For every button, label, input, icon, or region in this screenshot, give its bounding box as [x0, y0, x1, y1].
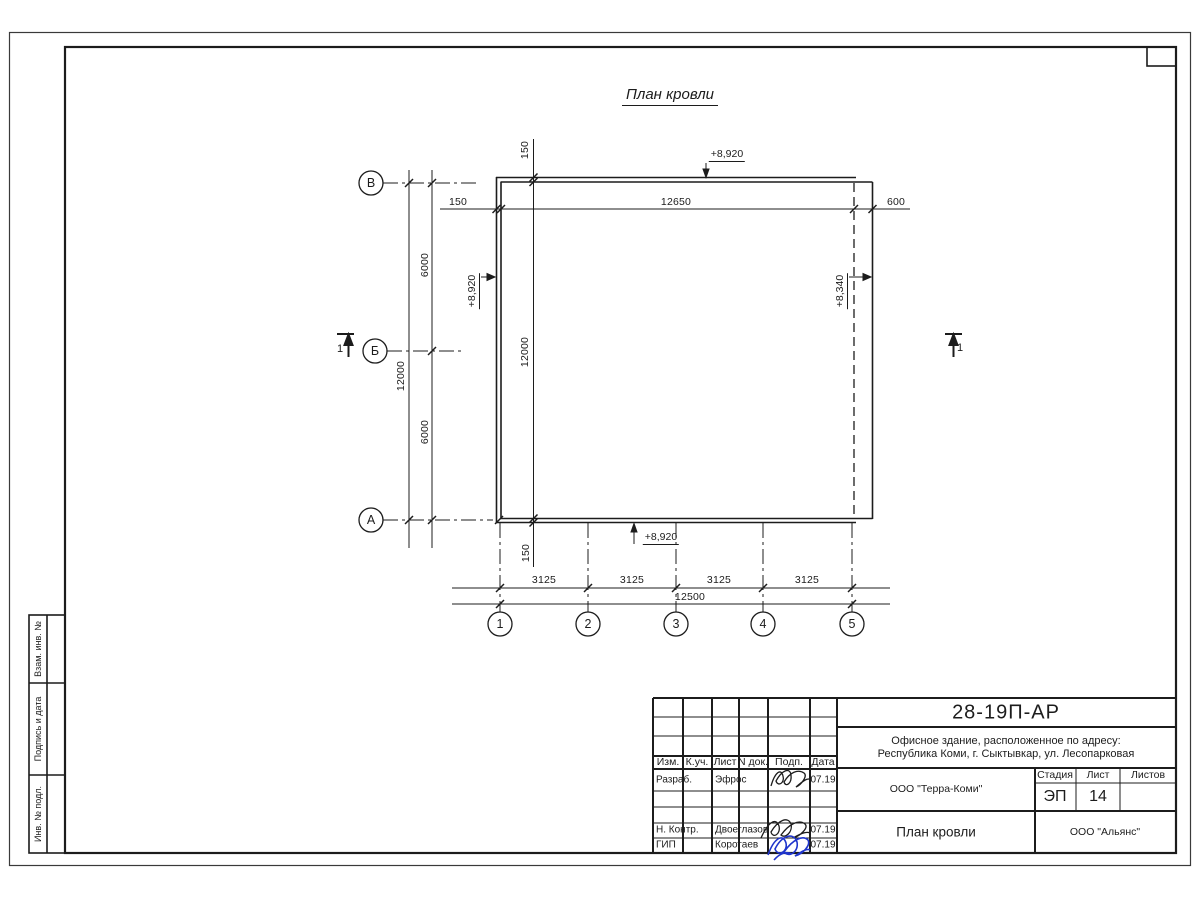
axis-label-4: 4: [760, 617, 767, 631]
dim-left-12000: 12000: [395, 361, 407, 391]
row-role-nkontr: Н. Контр.: [656, 825, 699, 836]
col-list: Лист: [714, 756, 737, 768]
drawing-title-cell: План кровли: [896, 825, 976, 840]
dim-inner-12000: 12000: [519, 337, 531, 367]
col-kuch: К.уч.: [686, 756, 709, 768]
level-leaders: [481, 163, 871, 544]
row-name-korotaev: Коротаев: [715, 840, 758, 851]
dim-top-12650: 12650: [661, 196, 691, 208]
level-bottom: +8,920: [643, 531, 679, 545]
object-address-line2: Республика Коми, г. Сыктывкар, ул. Лесоп…: [878, 748, 1135, 760]
section-marks: [337, 334, 962, 357]
dim-inner-150-bottom: 150: [520, 544, 532, 562]
section-number-right: 1: [957, 342, 963, 354]
dim-bottom-3125-2: 3125: [620, 574, 644, 586]
axis-lines: [383, 183, 852, 612]
axis-label-a: А: [367, 513, 375, 527]
axis-label-3: 3: [673, 617, 680, 631]
strip-label-vzam: Взам. инв. №: [33, 621, 43, 677]
dim-bottom-3125-1: 3125: [532, 574, 556, 586]
dimension-ticks: [405, 174, 877, 609]
dim-top-600: 600: [887, 196, 905, 208]
dim-bottom-12500: 12500: [675, 591, 705, 603]
object-address-line1: Офисное здание, расположенное по адресу:: [891, 735, 1120, 747]
signature-razrab: [771, 770, 811, 787]
stage-value: ЭП: [1044, 788, 1067, 806]
dim-top-150: 150: [449, 196, 467, 208]
col-data: Дата: [811, 756, 834, 768]
drawing-linework: [0, 0, 1200, 900]
contractor-name: ООО "Альянс": [1070, 826, 1140, 838]
row-date-nkontr: 07.19: [810, 825, 835, 836]
dim-left-6000-lower: 6000: [419, 420, 431, 444]
signature-gip: [768, 836, 810, 860]
col-izm: Изм.: [657, 756, 680, 768]
stage-label: Стадия: [1037, 769, 1073, 781]
col-ndoc: N док.: [738, 756, 768, 768]
row-role-gip: ГИП: [656, 840, 676, 851]
strip-label-inv: Инв. № подл.: [33, 786, 43, 842]
format-box: [1147, 47, 1176, 66]
row-date-razrab: 07.19: [810, 775, 835, 786]
row-role-razrab: Разраб.: [656, 775, 692, 786]
strip-label-podpis: Подпись и дата: [33, 697, 43, 762]
roof-outline: [496, 177, 873, 523]
sheets-label: Листов: [1131, 769, 1165, 781]
row-name-dvoeglazov: Двоеглазов: [715, 825, 768, 836]
sheet-label: Лист: [1087, 769, 1110, 781]
col-podp: Подп.: [775, 756, 803, 768]
section-number-left: 1: [337, 343, 343, 355]
axis-label-1: 1: [497, 617, 504, 631]
sheet-value: 14: [1089, 788, 1107, 806]
plan-heading: План кровли: [622, 86, 718, 106]
row-name-efros: Эфрос: [715, 775, 747, 786]
dim-left-6000-upper: 6000: [419, 253, 431, 277]
axis-label-2: 2: [585, 617, 592, 631]
axis-label-v: В: [367, 176, 375, 190]
level-right: +8,340: [834, 273, 848, 309]
level-top: +8,920: [709, 148, 745, 162]
dim-bottom-3125-3: 3125: [707, 574, 731, 586]
axis-label-b: Б: [371, 344, 379, 358]
dim-inner-150-top: 150: [519, 141, 531, 159]
doc-number: 28-19П-АР: [952, 702, 1060, 725]
dim-bottom-3125-4: 3125: [795, 574, 819, 586]
row-date-gip: 07.19: [810, 840, 835, 851]
sheet-inner-frame: [65, 47, 1176, 853]
company-name: ООО "Терра-Коми": [890, 783, 983, 795]
axis-label-5: 5: [849, 617, 856, 631]
level-left: +8,920: [466, 273, 480, 309]
drawing-sheet: План кровли 150 12650 600 12000 6000 600…: [0, 0, 1200, 900]
axis-bubbles: [359, 171, 864, 636]
